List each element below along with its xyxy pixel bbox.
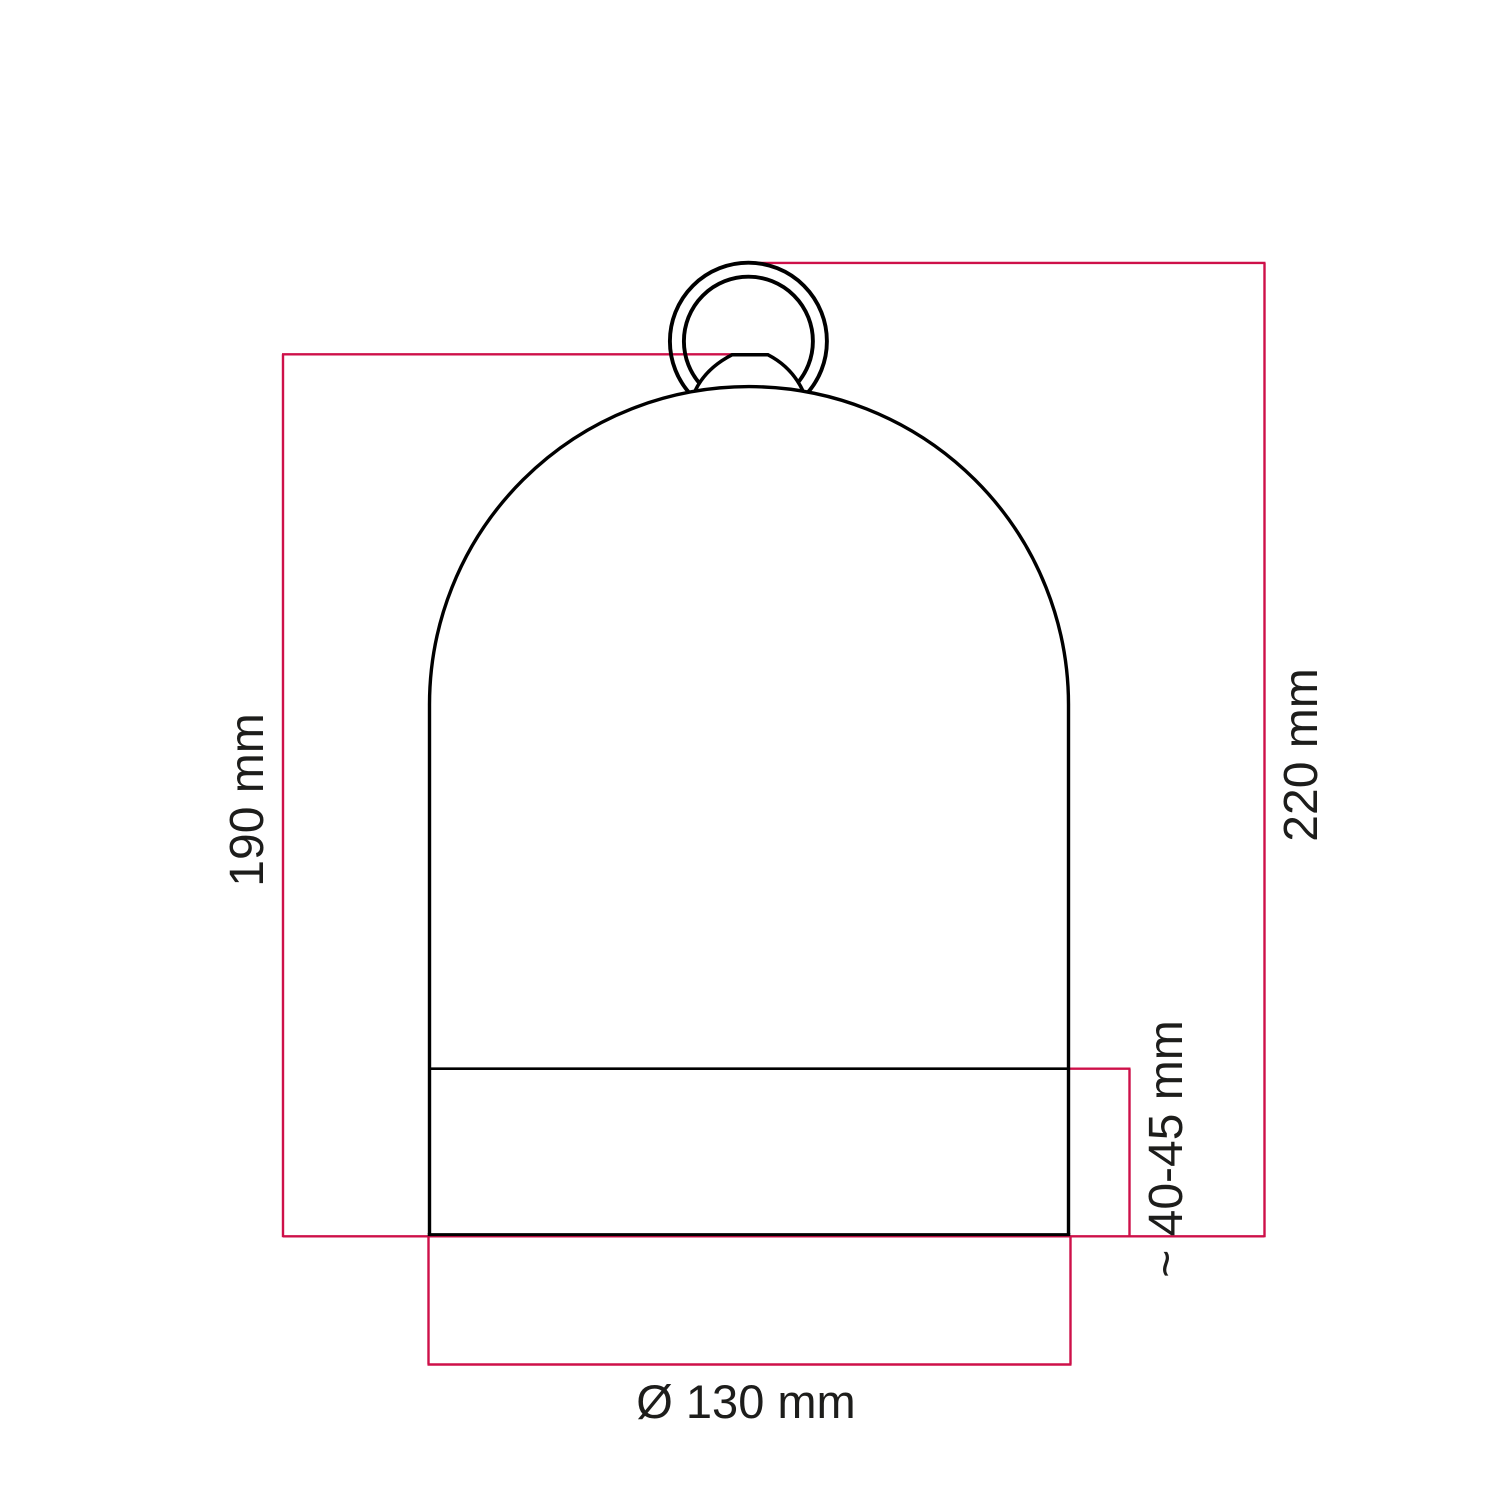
svg-text:~ 40-45 mm: ~ 40-45 mm: [1140, 1020, 1193, 1277]
svg-text:220 mm: 220 mm: [1275, 668, 1328, 841]
svg-text:Ø 130 mm: Ø 130 mm: [636, 1375, 855, 1428]
svg-text:190 mm: 190 mm: [221, 713, 274, 886]
